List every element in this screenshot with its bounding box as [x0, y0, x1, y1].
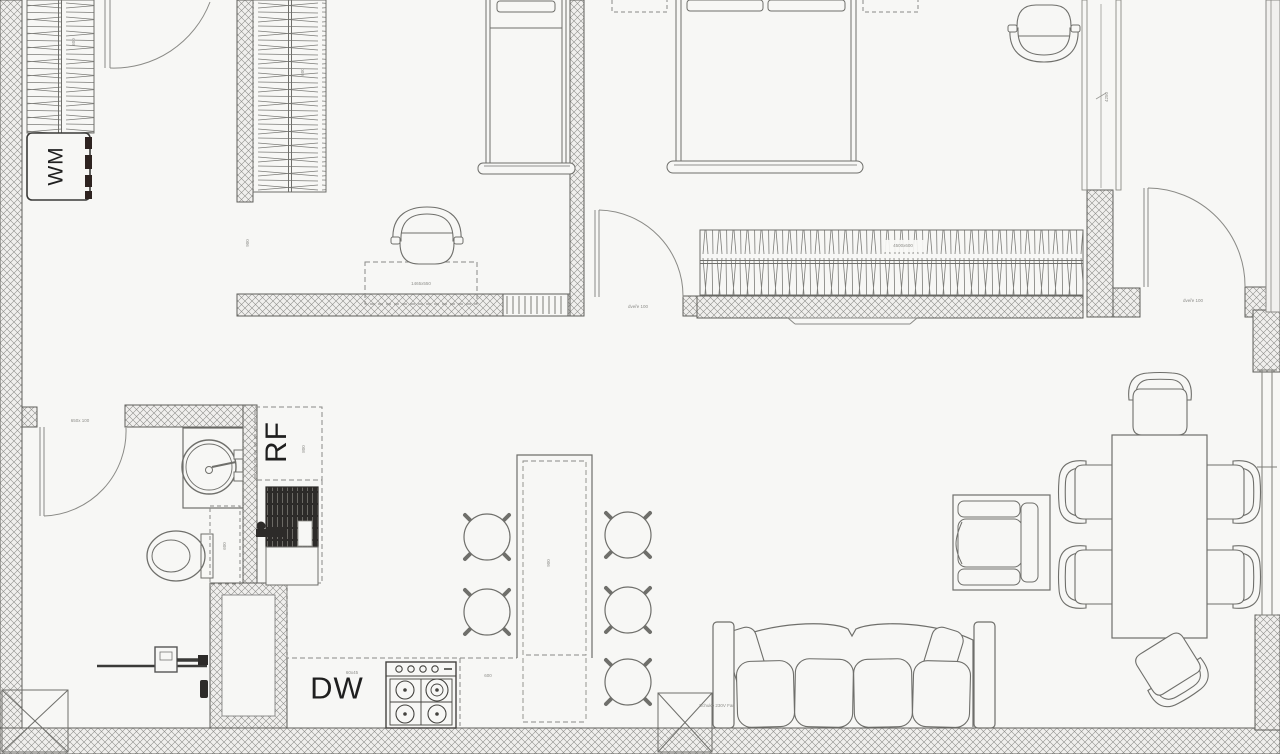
dining-table	[1112, 435, 1207, 638]
shower-head	[155, 647, 177, 672]
shower	[97, 647, 208, 698]
dining-chair	[1129, 373, 1192, 436]
dim-label-closet2: 600	[301, 68, 306, 76]
dim-label-rf: 800	[302, 445, 307, 453]
walls	[0, 0, 1280, 754]
wall-entry-cavity	[1082, 0, 1121, 190]
hall-closet	[27, 0, 94, 133]
wall-bedroom2-door-pier	[683, 296, 697, 316]
bar-stool	[605, 512, 651, 558]
shower-valve	[198, 655, 208, 665]
pillow	[768, 0, 845, 11]
threshold	[788, 318, 917, 324]
wall-bathroom-top	[125, 405, 245, 427]
door-handle	[200, 680, 208, 698]
sofa-seat-cushion	[794, 658, 853, 727]
faucet-tap	[234, 450, 243, 459]
dim-label-hall: 900	[246, 239, 251, 247]
dim-label-wardrobe: 4500x600	[893, 244, 913, 249]
bedroom2-wardrobe	[700, 230, 1083, 295]
toilet	[147, 531, 213, 581]
bar-stool	[605, 659, 651, 705]
wall-entry-horizontal	[1113, 288, 1140, 317]
wall-left	[0, 0, 22, 754]
armchair-arm	[958, 569, 1020, 585]
refrigerator-label: RF	[262, 421, 292, 463]
dim-label-dw: 60x45	[346, 671, 358, 676]
armchair-back	[1021, 503, 1038, 582]
dim-label-island: 900	[547, 559, 552, 567]
dim-label-desk: 1465x550	[411, 282, 431, 287]
nightstand-left	[612, 0, 667, 12]
floor-plan: WM RF DW 600 600 900 1465x550 4500x600 6…	[0, 0, 1280, 754]
wall-bedroom1-bottom	[237, 294, 503, 316]
bathroom-sink	[182, 428, 243, 508]
kitchen-sink	[256, 487, 318, 547]
dim-label-entry-door: dveře 100	[1183, 299, 1203, 304]
wall-right-upper	[1266, 0, 1280, 312]
pillow	[687, 0, 763, 11]
kitchen-peninsula	[517, 455, 592, 722]
bed-footboard	[667, 161, 863, 173]
armchair-seat	[958, 519, 1022, 567]
door-hall-top	[105, 0, 210, 68]
dim-label-right-wall: 4250	[1105, 92, 1110, 102]
bed-single	[478, 0, 575, 174]
dishwasher-label: DW	[310, 673, 364, 704]
shaft-interior	[222, 595, 275, 716]
bed-footboard	[478, 163, 575, 174]
wall-hall-bedroom1	[237, 0, 253, 202]
kitchen-cabinet	[266, 547, 318, 585]
sofa-seat-cushion	[912, 660, 971, 727]
door-entry	[1144, 188, 1245, 287]
sofa-arm	[974, 622, 995, 728]
wall-left-pier	[22, 407, 37, 427]
wall-bathroom-kitchen	[243, 405, 257, 585]
dining-chair	[1129, 628, 1215, 714]
armchair-arm	[958, 501, 1020, 517]
pillow	[497, 1, 555, 12]
bedroom1-closet	[253, 0, 326, 192]
faucet-tap	[234, 472, 243, 481]
wall-bedroom2-bottom	[697, 296, 1083, 318]
stove	[386, 662, 456, 728]
dim-label-closet1: 600	[72, 38, 77, 46]
wall-bedroom-divider	[570, 0, 584, 316]
wall-right-low	[1255, 615, 1280, 730]
bed-double	[612, 0, 918, 173]
bar-stool	[464, 589, 510, 635]
sofa	[713, 622, 995, 728]
dim-label-bath-door: 650x 100	[71, 419, 90, 424]
washing-machine-label: WM	[46, 146, 67, 185]
sofa-seat-cushion	[736, 660, 795, 727]
sofa-arm	[713, 622, 734, 728]
dim-label-bath-cabinet: 600	[223, 542, 228, 550]
dim-label-counter: 600	[484, 674, 492, 679]
sofa-seat-cushion	[853, 658, 912, 727]
desk-chair	[391, 207, 463, 264]
door-bedroom2	[595, 210, 683, 297]
wall-entry-left	[1087, 190, 1113, 317]
bar-stool	[605, 587, 651, 633]
note-label-sofa: Schuko 230V Fan	[699, 704, 735, 709]
washing-machine-seal	[85, 137, 92, 149]
dim-label-bedroom2-door: dveře 100	[628, 305, 648, 310]
nightstand-right	[863, 0, 918, 12]
wall-bottom	[0, 728, 1280, 754]
bar-stool	[464, 514, 510, 560]
entry-chair	[1008, 5, 1080, 62]
armchair	[953, 495, 1050, 590]
bedroom1-wall-vent	[503, 294, 568, 316]
door-bathroom	[40, 427, 126, 516]
floor-plan-drawing	[0, 0, 1280, 754]
wall-right-mid	[1253, 310, 1280, 372]
